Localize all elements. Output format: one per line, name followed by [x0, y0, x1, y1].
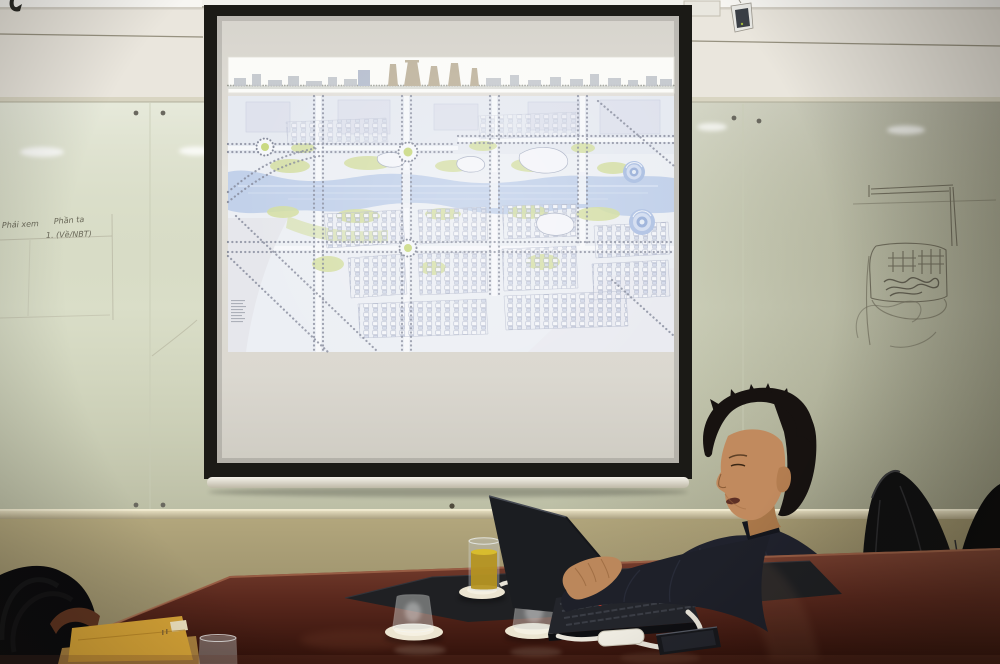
scene-canvas: Phải xem Phần ta 1. (Về/NBT): [0, 0, 1000, 664]
meeting-room-photo: Phải xem Phần ta 1. (Về/NBT): [0, 0, 1000, 664]
photo-vignette: [0, 0, 1000, 664]
